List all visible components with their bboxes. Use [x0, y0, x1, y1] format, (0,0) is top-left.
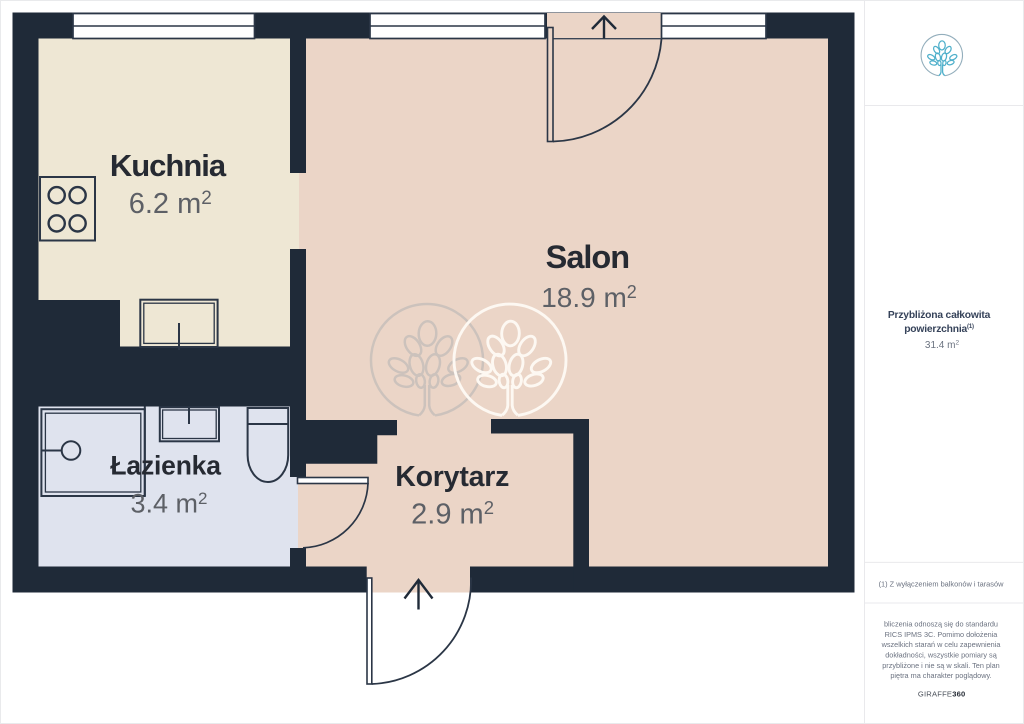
svg-text:2.9 m2: 2.9 m2 [411, 497, 494, 531]
svg-text:18.9 m2: 18.9 m2 [541, 282, 637, 313]
svg-text:31.4 m2: 31.4 m2 [925, 339, 960, 351]
svg-text:przybliżone i nie są w skali.: przybliżone i nie są w skali. Ten plan [882, 661, 1000, 670]
svg-text:Kuchnia: Kuchnia [110, 148, 227, 183]
svg-text:3.4 m2: 3.4 m2 [131, 489, 208, 519]
svg-text:bliczenia odnoszą się do stand: bliczenia odnoszą się do standardu [884, 620, 998, 629]
svg-text:Łazienka: Łazienka [110, 451, 221, 481]
svg-text:6.2 m2: 6.2 m2 [129, 188, 212, 220]
svg-text:powierzchnia(1): powierzchnia(1) [904, 324, 974, 335]
svg-text:wszelkich starań w celu zapewn: wszelkich starań w celu zapewnienia [881, 640, 1002, 649]
svg-text:GIRAFFE360: GIRAFFE360 [918, 690, 966, 699]
svg-text:RICS IPMS 3C. Pomimo dołożenia: RICS IPMS 3C. Pomimo dołożenia [885, 630, 999, 639]
svg-text:dokładności, wszystkie pomiary: dokładności, wszystkie pomiary są [885, 651, 997, 660]
svg-text:Korytarz: Korytarz [395, 461, 509, 493]
svg-text:piętra ma charakter poglądowy.: piętra ma charakter poglądowy. [890, 671, 991, 680]
svg-text:(1) Z wyłączeniem balkonów i t: (1) Z wyłączeniem balkonów i tarasów [879, 579, 1005, 588]
svg-text:Przybliżona całkowita: Przybliżona całkowita [888, 310, 991, 321]
svg-text:Salon: Salon [546, 239, 630, 275]
